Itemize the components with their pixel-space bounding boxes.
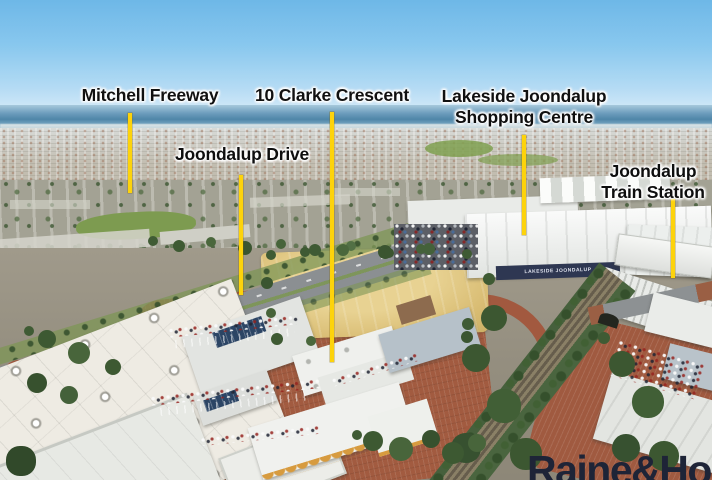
callout-line-clarke-crescent	[330, 112, 334, 362]
foreground-trees	[352, 430, 362, 440]
raine-and-horne-logo: Raine&Horne	[527, 447, 712, 480]
left-trees	[24, 326, 34, 336]
building-strip	[330, 188, 400, 196]
callout-line-mitchell-freeway	[128, 113, 132, 193]
building-strip	[10, 200, 90, 209]
label-text: 10 Clarke Crescent	[255, 85, 409, 105]
callout-label-lakeside: Lakeside Joondalup Shopping Centre	[442, 86, 607, 128]
tree-line	[148, 236, 158, 246]
sand-lot-trees	[266, 250, 276, 260]
mall-sign-text: LAKESIDE JOONDALUP	[524, 267, 591, 275]
aerial-photo: LAKESIDE JOONDALUP	[0, 0, 712, 480]
golf-course-patch	[425, 140, 493, 157]
label-text-line2: Shopping Centre	[442, 107, 607, 128]
label-text: Joondalup Drive	[175, 144, 309, 164]
label-text-line1: Joondalup	[601, 161, 704, 182]
mall-carpark	[394, 224, 478, 270]
rail-east-trees	[598, 332, 610, 344]
callout-label-clarke-crescent: 10 Clarke Crescent	[255, 85, 409, 106]
callout-label-joondalup-drive: Joondalup Drive	[175, 144, 309, 165]
label-text-line2: Train Station	[601, 182, 704, 203]
callout-line-train-station	[671, 199, 675, 278]
rail-west-trees	[462, 318, 474, 330]
label-text-line1: Lakeside Joondalup	[442, 86, 607, 107]
callout-line-lakeside	[522, 135, 526, 235]
label-text: Mitchell Freeway	[82, 85, 219, 105]
green-patch	[478, 154, 558, 166]
callout-label-mitchell-freeway: Mitchell Freeway	[82, 85, 219, 106]
callout-line-joondalup-drive	[239, 175, 243, 295]
callout-label-train-station: Joondalup Train Station	[601, 161, 704, 203]
